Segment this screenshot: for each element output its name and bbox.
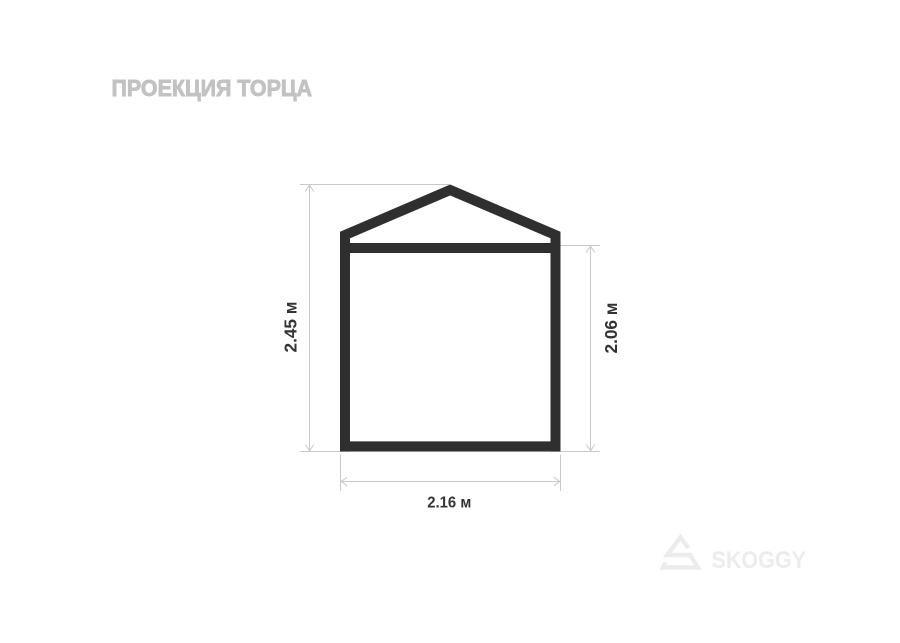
svg-text:2.06 м: 2.06 м <box>601 303 621 354</box>
svg-text:SKOGGY: SKOGGY <box>712 547 807 574</box>
svg-text:2.16 м: 2.16 м <box>427 494 471 511</box>
svg-text:2.45 м: 2.45 м <box>281 302 301 353</box>
svg-text:ПРОЕКЦИЯ ТОРЦА: ПРОЕКЦИЯ ТОРЦА <box>112 75 313 101</box>
